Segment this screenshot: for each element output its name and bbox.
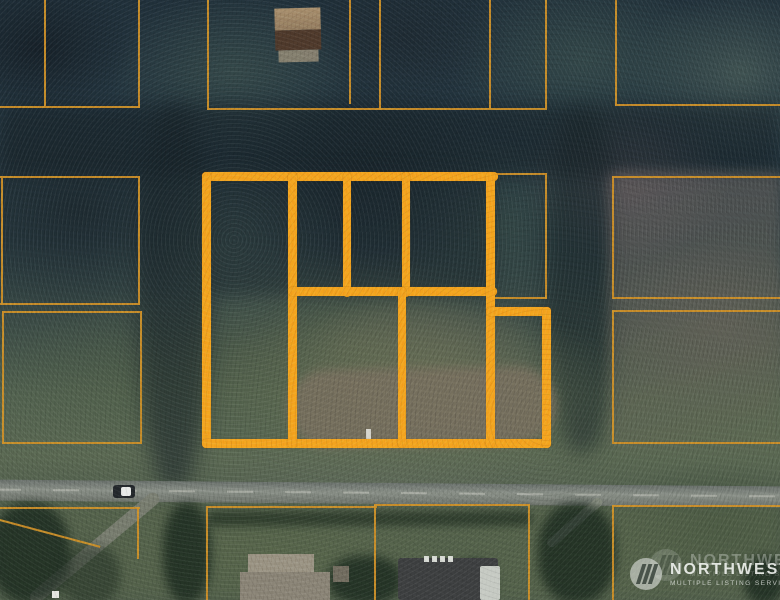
pine-trees-icon (628, 556, 664, 592)
photo-grain (0, 0, 780, 600)
watermark-main: NORTHWEST MULTIPLE LISTING SERVICE. (628, 556, 780, 592)
watermark-subtitle: MULTIPLE LISTING SERVICE. (670, 580, 780, 587)
watermark-brand: NORTHWEST (670, 562, 780, 578)
aerial-map: NORTHWEST MULTIPLE LISTING SERVICE. NORT… (0, 0, 780, 600)
mls-watermark: NORTHWEST MULTIPLE LISTING SERVICE. NORT… (628, 556, 778, 598)
